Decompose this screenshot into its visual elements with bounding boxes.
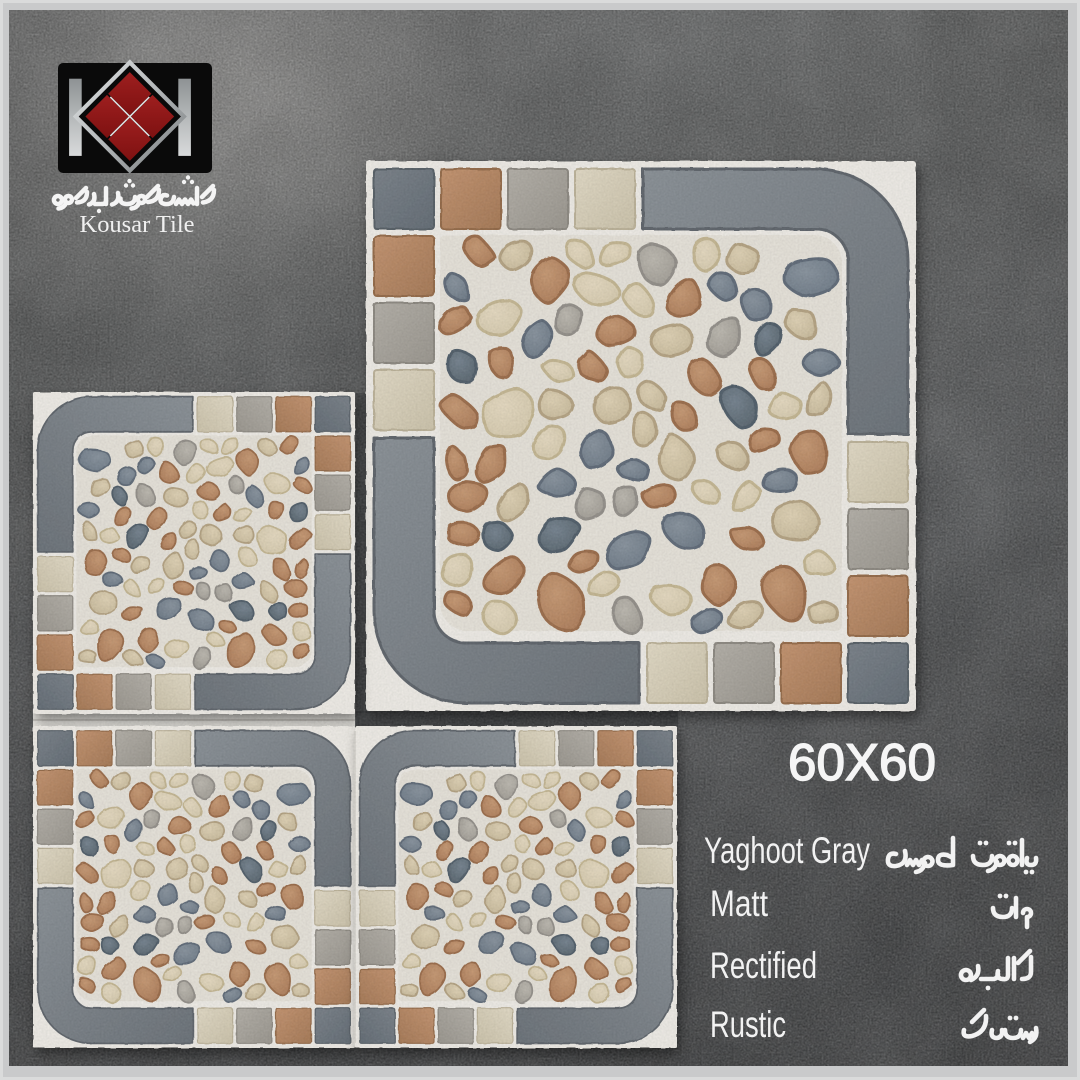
svg-text:Rustic: Rustic xyxy=(710,1004,786,1045)
svg-text:60X60: 60X60 xyxy=(788,734,936,792)
svg-text:Yaghoot Gray: Yaghoot Gray xyxy=(704,830,870,871)
svg-text:Matt: Matt xyxy=(710,883,769,924)
svg-text:Kousar Tile: Kousar Tile xyxy=(80,212,195,238)
svg-text:Rectified: Rectified xyxy=(710,945,817,986)
